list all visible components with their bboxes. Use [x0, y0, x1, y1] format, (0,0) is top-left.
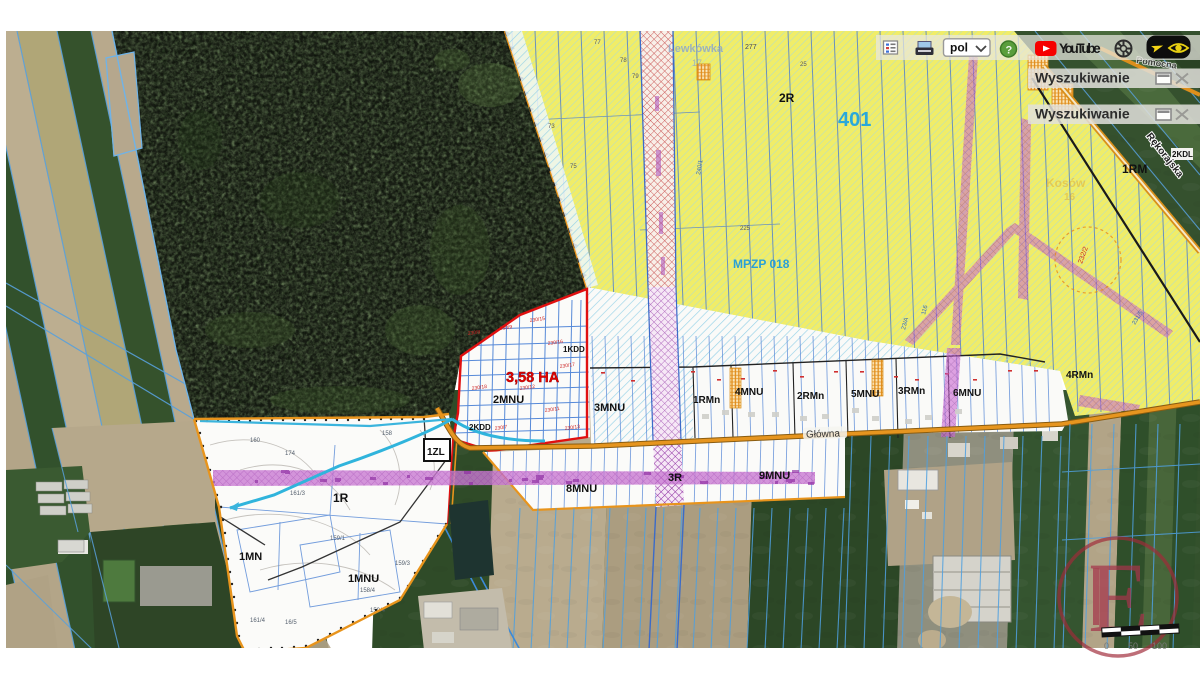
svg-text:1RMn: 1RMn [693, 395, 720, 406]
svg-text:1RM: 1RM [1122, 162, 1147, 176]
svg-text:401: 401 [838, 109, 871, 131]
svg-text:3RMn: 3RMn [898, 386, 925, 397]
svg-text:225: 225 [740, 226, 751, 232]
svg-text:0: 0 [1104, 641, 1109, 651]
svg-text:174: 174 [285, 451, 296, 457]
svg-text:75: 75 [570, 164, 577, 170]
svg-text:5MNU: 5MNU [851, 389, 879, 400]
svg-text:77: 77 [594, 40, 601, 46]
svg-text:3R: 3R [668, 472, 682, 484]
svg-text:MPZP 018: MPZP 018 [733, 257, 790, 271]
svg-text:1MN: 1MN [239, 551, 262, 563]
svg-text:100: 100 [1152, 641, 1167, 651]
svg-text:16: 16 [1064, 192, 1076, 203]
svg-text:161/4: 161/4 [250, 618, 266, 624]
svg-text:Kosów: Kosów [1046, 176, 1086, 190]
svg-text:50: 50 [1128, 641, 1138, 651]
svg-text:1MNU: 1MNU [348, 573, 379, 585]
svg-text:73: 73 [548, 124, 555, 130]
svg-text:6MNU: 6MNU [953, 388, 981, 399]
svg-text:158/4: 158/4 [360, 588, 376, 594]
svg-text:78: 78 [620, 58, 627, 64]
svg-text:8MNU: 8MNU [566, 483, 597, 495]
svg-text:1ZL: 1ZL [427, 447, 445, 458]
svg-text:159/1: 159/1 [330, 536, 346, 542]
svg-text:277: 277 [745, 44, 757, 51]
svg-text:17: 17 [692, 58, 702, 68]
svg-text:Lewkówka: Lewkówka [668, 43, 724, 55]
svg-text:YouTube: YouTube [1059, 41, 1101, 56]
svg-text:25: 25 [800, 62, 807, 68]
svg-text:2KDL: 2KDL [1172, 150, 1193, 159]
svg-text:158: 158 [382, 431, 393, 437]
svg-text:79: 79 [632, 74, 639, 80]
svg-text:2MNU: 2MNU [493, 394, 524, 406]
svg-text:1R: 1R [333, 491, 349, 505]
svg-text:3,58 HA: 3,58 HA [506, 370, 560, 386]
svg-text:161/3: 161/3 [290, 491, 306, 497]
svg-text:159/3: 159/3 [395, 561, 411, 567]
svg-text:2R: 2R [779, 91, 795, 105]
svg-text:16/5: 16/5 [285, 620, 297, 626]
svg-text:Główna: Główna [806, 428, 841, 440]
svg-text:Wyszukiwanie: Wyszukiwanie [1035, 70, 1130, 86]
svg-text:pol: pol [950, 41, 968, 55]
svg-text:2KDD: 2KDD [469, 423, 491, 432]
svg-text:3MNU: 3MNU [594, 402, 625, 414]
svg-text:4RMn: 4RMn [1066, 370, 1093, 381]
svg-text:Wyszukiwanie: Wyszukiwanie [1035, 106, 1130, 122]
svg-text:4MNU: 4MNU [735, 387, 763, 398]
svg-text:2RMn: 2RMn [797, 391, 824, 402]
svg-text:1KDD: 1KDD [563, 345, 585, 354]
svg-text:9MNU: 9MNU [759, 470, 790, 482]
svg-text:?: ? [1006, 45, 1013, 57]
svg-text:160: 160 [250, 438, 261, 444]
